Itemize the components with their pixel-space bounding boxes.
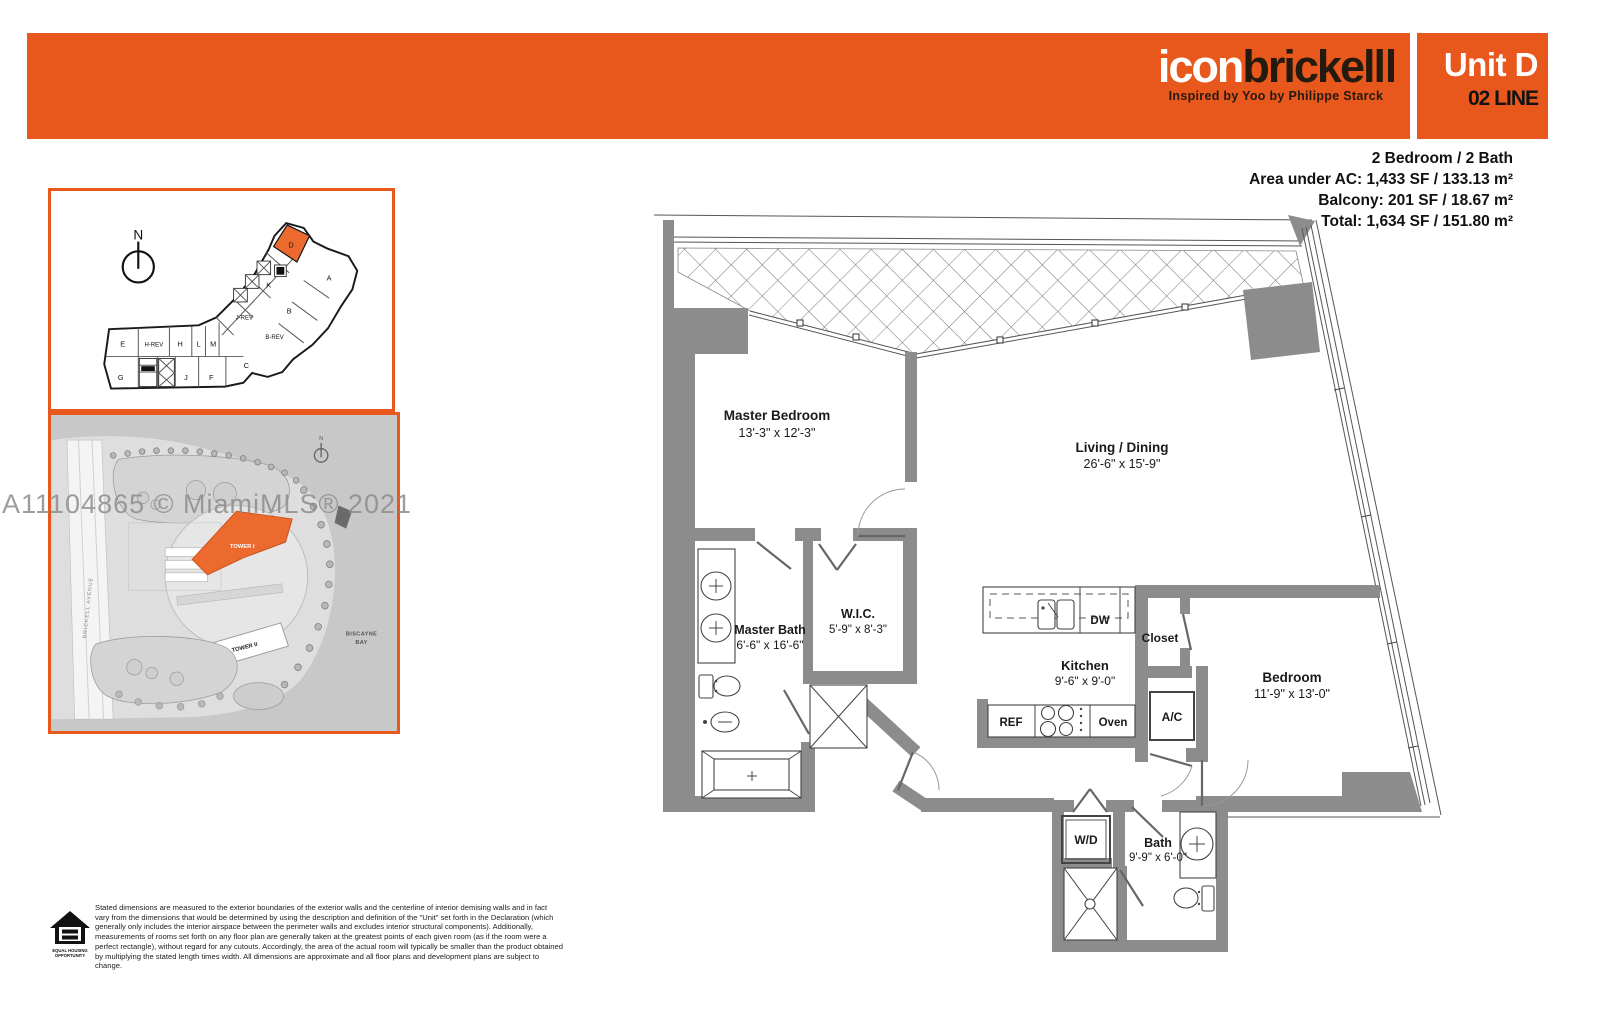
keyplan-inset: N — [48, 188, 395, 412]
logo-bar-icon — [1388, 49, 1394, 82]
master-bath-door — [757, 542, 791, 569]
closet-door — [1183, 614, 1191, 650]
keyplan-unit-label: J — [184, 373, 188, 382]
kitchen-island-counter — [983, 587, 1135, 633]
label-ac: A/C — [1162, 710, 1183, 724]
kitchen-fixtures — [983, 587, 1135, 737]
wic-double-door — [819, 544, 856, 570]
room-dims-bath: 9'-9" x 6'-0" — [1129, 852, 1187, 864]
bidet-icon — [703, 712, 739, 732]
brand-icon-text: icon — [1158, 41, 1243, 92]
wd-double-door — [1073, 789, 1107, 812]
sitemap-inset: BRICKELL AVENUE TOWER I TOWER II BI — [48, 412, 400, 734]
room-label-bedroom: Bedroom — [1262, 670, 1321, 685]
disclaimer-text: Stated dimensions are measured to the ex… — [95, 903, 563, 971]
brand-brickell-text: brickell — [1242, 41, 1384, 92]
shower-icon — [1064, 868, 1117, 940]
bedroom-corner-block — [1342, 772, 1422, 812]
brand-wordmark: iconbrickell — [1158, 43, 1394, 91]
floorplan-svg: Master Bedroom 13'-3" x 12'-3" Living / … — [630, 195, 1450, 965]
summary-area-ac: Area under AC: 1,433 SF / 133.13 m² — [1249, 169, 1513, 190]
bath-door — [1132, 807, 1163, 837]
room-dims-master-bath: 6'-6" x 16'-6" — [736, 638, 803, 652]
brand-tagline: Inspired by Yoo by Philippe Starck — [1158, 89, 1394, 103]
summary-bed-bath: 2 Bedroom / 2 Bath — [1249, 148, 1513, 169]
keyplan-unit-label: A — [327, 274, 332, 283]
master-shower-icon — [810, 685, 867, 748]
toilet-icon — [1174, 886, 1214, 911]
label-ref: REF — [1000, 717, 1023, 729]
master-shower-door — [784, 690, 809, 734]
keyplan-core-grid-icon — [139, 358, 174, 386]
toilet-icon — [699, 675, 740, 698]
keyplan-unit-label: B — [287, 307, 292, 316]
unit-banner: Unit D 02 LINE — [1417, 33, 1548, 139]
room-dims-wic: 5'-9" x 8'-3" — [829, 624, 887, 636]
room-dims-master-bedroom: 13'-3" x 12'-3" — [739, 426, 816, 440]
keyplan-building-outline — [104, 223, 357, 388]
floorplan: Master Bedroom 13'-3" x 12'-3" Living / … — [630, 195, 1450, 970]
sitemap-north-label: N — [319, 436, 323, 442]
keyplan-unit-label: D — [288, 240, 293, 249]
sitemap-bay-label2: BAY — [355, 640, 367, 646]
brand-logo: iconbrickell Inspired by Yoo by Philippe… — [1158, 43, 1394, 103]
header-bar: iconbrickell Inspired by Yoo by Philippe… — [27, 33, 1410, 139]
room-label-living-dining: Living / Dining — [1076, 440, 1169, 455]
keyplan-unit-label: H — [178, 340, 183, 349]
room-label-kitchen: Kitchen — [1061, 658, 1109, 673]
equal-housing-caption2: OPPORTUNITY — [55, 953, 85, 958]
keyplan-unit-label: E — [120, 340, 125, 349]
sink-icon — [701, 614, 731, 642]
room-label-master-bath: Master Bath — [734, 623, 806, 637]
equal-housing-svg: EQUAL HOUSING OPPORTUNITY — [47, 908, 93, 964]
keyplan-north-label: N — [133, 228, 143, 243]
room-label-closet: Closet — [1142, 631, 1179, 645]
keyplan-unit-label: F — [209, 373, 214, 382]
label-dw: DW — [1090, 615, 1109, 627]
structural-column — [1243, 282, 1320, 360]
sitemap-bay-label1: BISCAYNE — [346, 631, 377, 637]
room-dims-living-dining: 26'-6" x 15'-9" — [1084, 457, 1161, 471]
keyplan-unit-label: M — [210, 340, 216, 349]
unit-title: Unit D — [1417, 33, 1548, 83]
mls-watermark: A11104865 © MiamiMLS® 2021 — [2, 489, 412, 520]
label-oven: Oven — [1099, 717, 1128, 729]
sink-icon — [701, 572, 731, 600]
balcony — [678, 248, 1320, 360]
keyplan-unit-label: B-REV — [265, 335, 283, 341]
room-label-bath: Bath — [1144, 836, 1172, 850]
keyplan-compass: N — [123, 228, 154, 283]
keyplan-unit-label: L — [197, 340, 201, 349]
label-wd: W/D — [1074, 833, 1098, 847]
keyplan-svg: N — [51, 191, 392, 409]
equal-housing-house-icon — [50, 911, 90, 944]
sitemap-tower1-label: TOWER I — [230, 544, 255, 550]
bath-fixtures — [1064, 812, 1216, 940]
window-wall-east — [1200, 220, 1441, 817]
line-title: 02 LINE — [1417, 83, 1548, 111]
keyplan-unit-label: C — [244, 361, 249, 370]
equal-housing-logo: EQUAL HOUSING OPPORTUNITY — [47, 908, 93, 969]
ac-door — [1150, 754, 1192, 796]
exterior-top-edge — [654, 215, 1315, 246]
bathtub-icon — [702, 751, 801, 798]
room-label-master-bedroom: Master Bedroom — [724, 408, 831, 423]
keyplan-unit-label: G — [118, 373, 124, 382]
sitemap-svg: BRICKELL AVENUE TOWER I TOWER II BI — [51, 415, 391, 725]
keyplan-unit-label: H-REV — [145, 343, 164, 349]
room-dims-kitchen: 9'-6" x 9'-0" — [1055, 674, 1115, 688]
keyplan-unit-label: J-REV — [236, 315, 253, 321]
vanity-counter — [698, 549, 735, 663]
room-label-wic: W.I.C. — [841, 607, 875, 621]
room-dims-bedroom: 11'-9" x 13'-0" — [1254, 687, 1330, 701]
keyplan-unit-label: K — [266, 280, 271, 289]
